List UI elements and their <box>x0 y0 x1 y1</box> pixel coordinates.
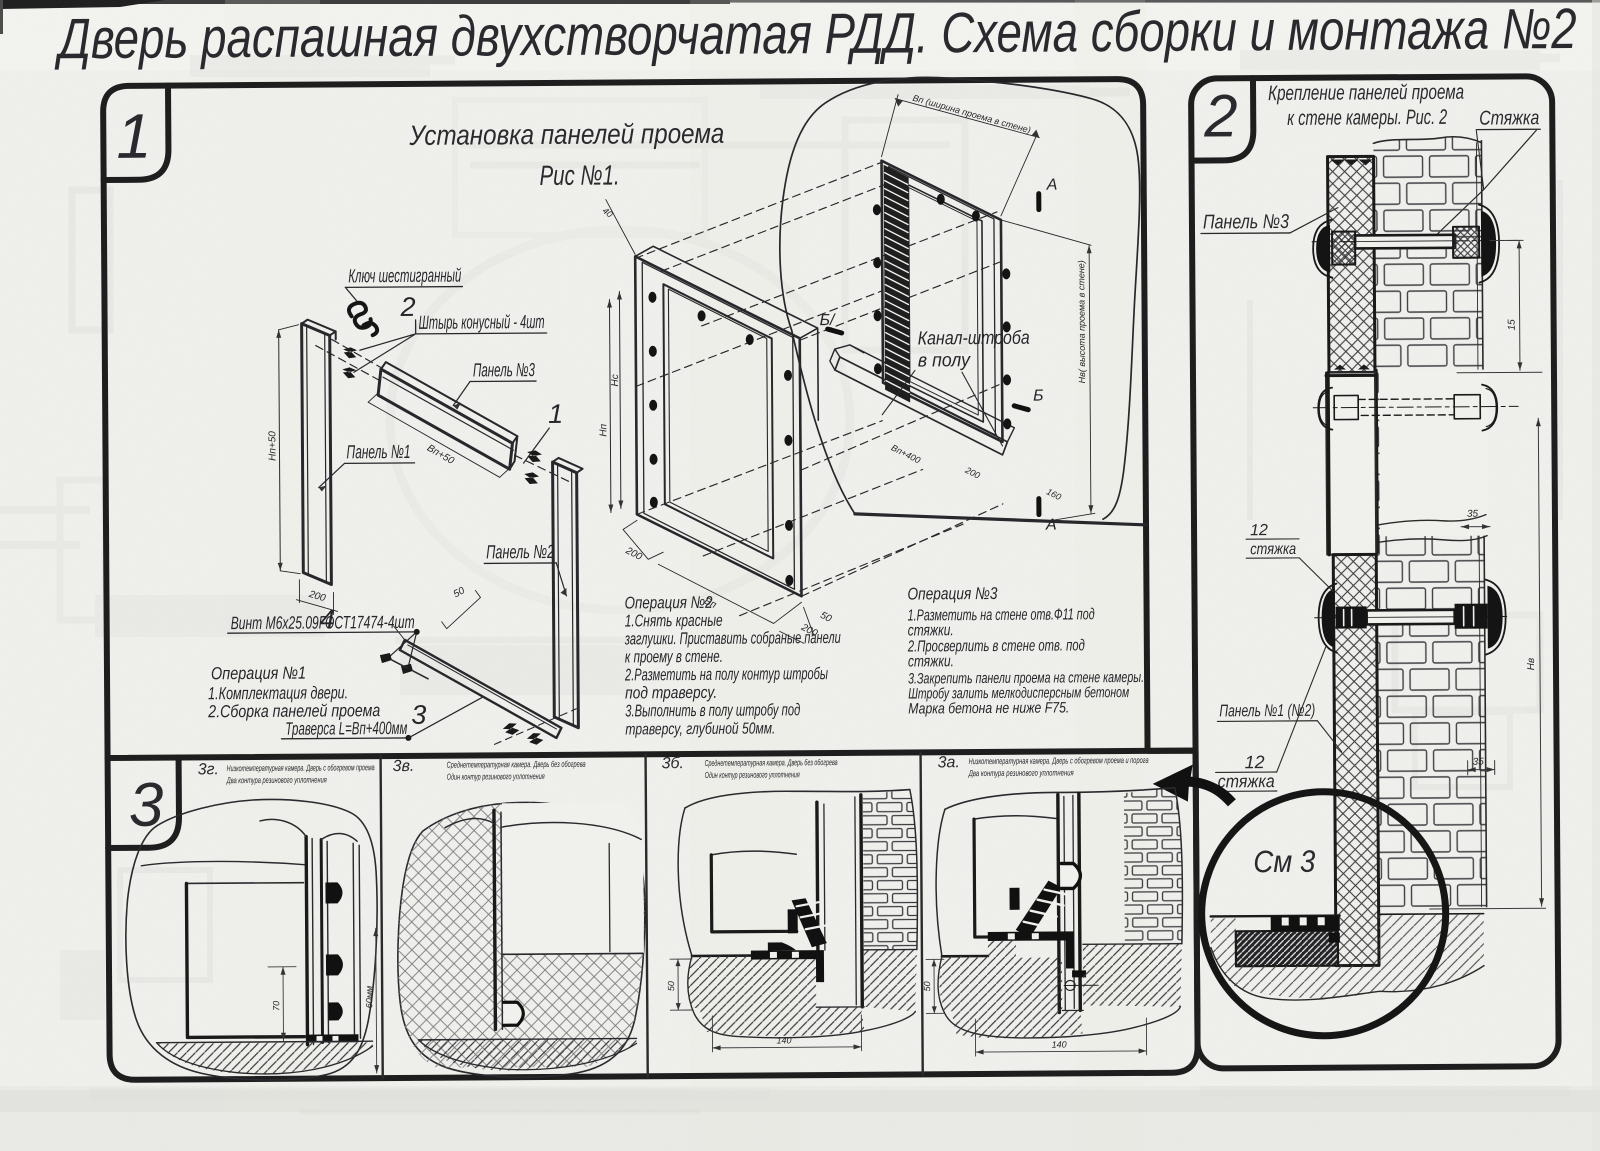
svg-text:Б: Б <box>1033 388 1044 405</box>
svg-text:Операция №2: Операция №2 <box>624 593 713 613</box>
svg-text:Панель №3: Панель №3 <box>1203 211 1289 234</box>
svg-text:35: 35 <box>1473 757 1485 768</box>
svg-text:А: А <box>1045 517 1057 534</box>
svg-text:Нв: Нв <box>1526 658 1537 671</box>
svg-text:А: А <box>1046 177 1058 194</box>
svg-text:2.Разметить на полу контур штр: 2.Разметить на полу контур штробы <box>624 664 828 684</box>
svg-text:к стене камеры. Рис. 2: к стене камеры. Рис. 2 <box>1287 106 1447 130</box>
svg-text:Винт М6х25.09ГОСТ17474-4шт: Винт М6х25.09ГОСТ17474-4шт <box>231 612 415 633</box>
svg-text:Операция №3: Операция №3 <box>907 584 998 604</box>
svg-text:12: 12 <box>1245 752 1265 772</box>
svg-text:3: 3 <box>411 700 426 730</box>
svg-text:Б/: Б/ <box>820 312 837 329</box>
svg-text:35: 35 <box>1467 509 1479 520</box>
svg-text:Канал-штроба: Канал-штроба <box>918 328 1030 350</box>
svg-text:Панель №1: Панель №1 <box>346 442 410 463</box>
svg-text:Один контур резинового уплотне: Один контур резинового уплотнения <box>705 769 800 780</box>
svg-text:Марка бетона не ниже F75.: Марка бетона не ниже F75. <box>908 699 1069 717</box>
svg-text:Один контур резинового уплотне: Один контур резинового уплотнения <box>447 771 545 782</box>
svg-text:Среднетемпературная камера. Дв: Среднетемпературная камера. Дверь без об… <box>705 757 838 768</box>
svg-text:1: 1 <box>548 399 563 429</box>
svg-text:2: 2 <box>399 292 415 322</box>
svg-text:к проему в стене.: к проему в стене. <box>625 647 723 667</box>
svg-text:15: 15 <box>1507 319 1518 331</box>
svg-text:Низкотемпературная камера. Две: Низкотемпературная камера. Дверь с обогр… <box>969 755 1149 766</box>
svg-text:Нс: Нс <box>610 374 621 386</box>
svg-text:140: 140 <box>776 1035 791 1045</box>
svg-text:2: 2 <box>1203 82 1238 149</box>
svg-text:3: 3 <box>129 771 164 840</box>
svg-text:70: 70 <box>271 1001 281 1011</box>
svg-text:траверсу, глубиной 50мм.: траверсу, глубиной 50мм. <box>625 720 775 738</box>
svg-text:Нв( высота проема в стене): Нв( высота проема в стене) <box>1076 260 1087 383</box>
svg-text:Два контура резинового уплотне: Два контура резинового уплотнения <box>226 774 327 785</box>
svg-text:Низкотемпературная камера. Две: Низкотемпературная камера. Дверь с обогр… <box>227 762 375 773</box>
svg-text:60мм: 60мм <box>364 986 374 1008</box>
svg-text:Панель №3: Панель №3 <box>473 360 535 381</box>
svg-text:стяжка: стяжка <box>1218 771 1275 791</box>
svg-text:140: 140 <box>1052 1039 1067 1049</box>
svg-text:1.Снять красные: 1.Снять красные <box>625 611 723 631</box>
svg-text:под траверсу.: под траверсу. <box>625 683 717 703</box>
svg-text:Стяжка: Стяжка <box>1479 107 1539 129</box>
svg-text:Установка панелей проема: Установка панелей проема <box>408 118 724 151</box>
svg-text:50: 50 <box>666 981 676 991</box>
svg-text:Рис №1.: Рис №1. <box>540 159 620 191</box>
svg-text:Нп+50: Нп+50 <box>267 431 278 461</box>
svg-text:12: 12 <box>1250 522 1268 539</box>
svg-text:Два контура резинового уплотне: Два контура резинового уплотнения <box>968 767 1074 778</box>
svg-text:3.Выполнить в полу штробу под: 3.Выполнить в полу штробу под <box>625 700 800 720</box>
svg-text:См 3: См 3 <box>1253 844 1315 879</box>
svg-text:заглушки. Приставить собраные: заглушки. Приставить собраные панели <box>624 628 841 648</box>
svg-text:50: 50 <box>922 981 932 991</box>
svg-text:Панель №2: Панель №2 <box>486 542 554 563</box>
svg-text:в полу: в полу <box>918 350 972 371</box>
svg-text:Панель №1 (№2): Панель №1 (№2) <box>1219 701 1315 721</box>
svg-text:Крепление панелей проема: Крепление панелей проема <box>1268 81 1464 105</box>
svg-text:3в.: 3в. <box>393 758 415 775</box>
svg-text:Ключ шестигранный: Ключ шестигранный <box>348 266 461 288</box>
svg-text:стяжки.: стяжки. <box>908 622 954 639</box>
svg-text:3б.: 3б. <box>662 755 684 772</box>
svg-text:Среднетемпературная камера. Дв: Среднетемпературная камера. Дверь без об… <box>447 759 586 770</box>
svg-text:1: 1 <box>116 102 152 172</box>
svg-text:Нп: Нп <box>598 423 609 436</box>
svg-text:3а.: 3а. <box>938 754 960 771</box>
svg-text:3г.: 3г. <box>198 761 219 778</box>
svg-text:Операция №1: Операция №1 <box>211 663 306 684</box>
svg-text:Дверь распашная двухстворчатая: Дверь распашная двухстворчатая РДД. Схем… <box>54 0 1577 71</box>
svg-text:Штырь конусный - 4шт: Штырь конусный - 4шт <box>419 312 545 334</box>
svg-text:Траверса L=Вп+400мм: Траверса L=Вп+400мм <box>285 718 407 739</box>
svg-text:стяжки.: стяжки. <box>908 653 954 670</box>
svg-text:стяжка: стяжка <box>1250 541 1296 558</box>
